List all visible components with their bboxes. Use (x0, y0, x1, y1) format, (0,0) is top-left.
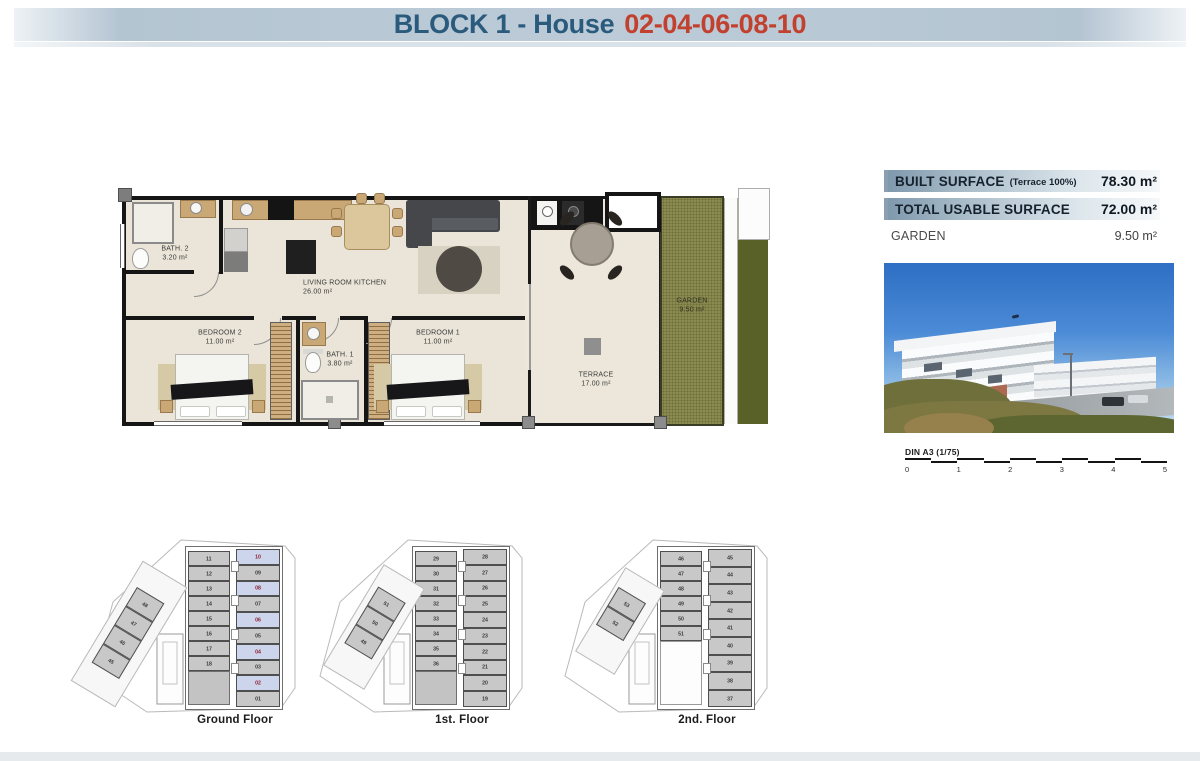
unit-cell: 47 (660, 566, 702, 581)
key-plan-building: 293031323334353628272625242322212019 (412, 546, 510, 710)
wall (122, 316, 254, 320)
unit-number: 14 (206, 601, 212, 607)
scale-tick: 0 (905, 465, 909, 474)
toilet (132, 248, 149, 269)
unit-number: 05 (255, 633, 261, 639)
key-plan-caption: 1st. Floor (382, 714, 542, 726)
unit-number: 50 (371, 619, 379, 627)
unit-number: 34 (433, 631, 439, 637)
unit-number: 10 (255, 554, 261, 560)
stair-core (458, 663, 466, 674)
dining-chair (392, 226, 403, 237)
stair-core (703, 663, 711, 674)
scale-tick: 5 (1163, 465, 1167, 474)
utility-sink-bowl (542, 206, 553, 217)
fridge (268, 200, 294, 220)
wardrobe (270, 322, 292, 420)
page-title: BLOCK 1 - House (394, 9, 615, 39)
unit-cell: 04 (236, 644, 280, 660)
surface-table: BUILT SURFACE (Terrace 100%) 78.30 m² TO… (884, 170, 1160, 252)
unit-cell: 07 (236, 596, 280, 612)
unit-number: 23 (482, 633, 488, 639)
unit-number: 47 (678, 571, 684, 577)
room-label-garden: GARDEN9.50 m² (676, 297, 707, 315)
unit-number: 51 (382, 600, 390, 608)
wall (122, 270, 194, 274)
unit-number: 42 (727, 608, 733, 614)
stair-core (458, 561, 466, 572)
unit-number: 46 (678, 556, 684, 562)
key-plan-building: 111213141516171810090807060504030201 (185, 546, 283, 710)
unit-cell: 38 (708, 672, 752, 690)
bath-sink (190, 202, 202, 214)
key-plan-ground-floor: 111213141516171810090807060504030201 Gro… (85, 538, 315, 734)
shower-drain (326, 396, 333, 403)
unit-number: 52 (611, 619, 619, 627)
unit-number: 39 (727, 660, 733, 666)
unit-cell: 01 (236, 691, 280, 707)
dining-chair (331, 208, 342, 219)
built-surface-note: (Terrace 100%) (1010, 175, 1077, 188)
building-base (188, 671, 230, 705)
stair-core (231, 595, 239, 606)
hall-cabinet-low (224, 252, 248, 272)
unit-number: 26 (482, 586, 488, 592)
unit-cell: 39 (708, 655, 752, 673)
dining-chair (356, 193, 367, 204)
dining-chair (374, 193, 385, 204)
unit-cell: 18 (188, 656, 230, 671)
scale-bar: DIN A3 (1/75) 0 1 2 3 4 5 (905, 447, 1167, 474)
nightstand (376, 400, 389, 413)
built-surface-value: 78.30 m² (1101, 173, 1160, 189)
stair-core (231, 561, 239, 572)
unit-cell: 42 (708, 602, 752, 620)
unit-cell: 14 (188, 596, 230, 611)
built-surface-row: BUILT SURFACE (Terrace 100%) 78.30 m² (884, 170, 1160, 192)
unit-cell: 35 (415, 641, 457, 656)
pillow (396, 406, 426, 417)
shower-tray (132, 202, 174, 244)
unit-cell: 51 (660, 626, 702, 641)
unit-cell: 34 (415, 626, 457, 641)
room-label-bath1: BATH. 13.80 m² (326, 351, 353, 369)
unit-cell: 45 (708, 549, 752, 567)
header-bar: BLOCK 1 - House02-04-06-08-10 (14, 8, 1186, 41)
unit-number: 50 (678, 616, 684, 622)
window (384, 421, 480, 426)
nightstand (252, 400, 265, 413)
unit-number: 51 (678, 631, 684, 637)
dining-chair (392, 208, 403, 219)
unit-number: 38 (727, 678, 733, 684)
unit-number: 36 (433, 661, 439, 667)
page-bottom-strip (0, 752, 1200, 761)
unit-cell: 43 (708, 584, 752, 602)
unit-number: 19 (482, 696, 488, 702)
unit-cell: 24 (463, 612, 507, 628)
unit-number: 28 (482, 554, 488, 560)
unit-number: 43 (727, 590, 733, 596)
unit-number: 04 (255, 649, 261, 655)
unit-number: 31 (433, 586, 439, 592)
wall (219, 196, 223, 274)
unit-cell: 32 (415, 596, 457, 611)
garden-path (724, 198, 738, 424)
unit-cell: 30 (415, 566, 457, 581)
unit-number: 48 (678, 586, 684, 592)
stair-core (231, 629, 239, 640)
scale-tick: 3 (1060, 465, 1064, 474)
unit-number: 06 (255, 617, 261, 623)
building-window (988, 374, 1002, 383)
unit-cell: 10 (236, 549, 280, 565)
garden-row: GARDEN 9.50 m² (884, 226, 1160, 246)
unit-number: 15 (206, 616, 212, 622)
unit-number: 25 (482, 601, 488, 607)
unit-cell: 25 (463, 596, 507, 612)
unit-number: 09 (255, 570, 261, 576)
unit-cell: 40 (708, 637, 752, 655)
room-label-living: LIVING ROOM KITCHEN26.00 m² (303, 279, 386, 297)
built-surface-label: BUILT SURFACE (888, 174, 1005, 189)
unit-cell: 03 (236, 660, 280, 676)
unit-number: 49 (360, 638, 368, 646)
unit-number: 47 (130, 620, 138, 628)
unit-cell: 50 (660, 611, 702, 626)
unit-number: 48 (141, 601, 149, 609)
unit-cell: 09 (236, 565, 280, 581)
stair-core (458, 595, 466, 606)
unit-number: 02 (255, 680, 261, 686)
unit-cell: 23 (463, 628, 507, 644)
wall (296, 316, 300, 424)
unit-number: 12 (206, 571, 212, 577)
toilet (305, 352, 321, 373)
page-title-house-numbers: 02-04-06-08-10 (624, 9, 806, 39)
unit-cell: 29 (415, 551, 457, 566)
car (1128, 395, 1148, 403)
unit-number: 27 (482, 570, 488, 576)
hall-cabinet (224, 228, 248, 252)
unit-cell: 19 (463, 691, 507, 707)
window (120, 224, 125, 268)
stair-core (703, 561, 711, 572)
dining-table (344, 204, 390, 250)
unit-cell: 05 (236, 628, 280, 644)
usable-surface-row: TOTAL USABLE SURFACE 72.00 m² (884, 198, 1160, 220)
dining-chair (331, 226, 342, 237)
pillow (216, 406, 246, 417)
unit-cell: 02 (236, 675, 280, 691)
car (1102, 397, 1124, 406)
nightstand (160, 400, 173, 413)
unit-cell: 33 (415, 611, 457, 626)
room-label-bath2: BATH. 23.20 m² (161, 245, 188, 263)
unit-cell: 48 (660, 581, 702, 596)
unit-cell: 21 (463, 660, 507, 676)
unit-cell: 17 (188, 641, 230, 656)
unit-number: 30 (433, 571, 439, 577)
stair-core (231, 663, 239, 674)
column (522, 416, 535, 429)
building-base (415, 671, 457, 705)
unit-number: 53 (623, 601, 631, 609)
scale-tick: 2 (1008, 465, 1012, 474)
unit-cell: 41 (708, 619, 752, 637)
unit-number: 45 (727, 555, 733, 561)
key-plan-second-floor: 464748495051454443424140393837 2nd. Floo… (557, 538, 787, 734)
column (118, 188, 132, 202)
unit-number: 17 (206, 646, 212, 652)
unit-number: 24 (482, 617, 488, 623)
unit-number: 18 (206, 661, 212, 667)
unit-cell: 37 (708, 690, 752, 708)
apartment-floor-plan: BATH. 23.20 m² LIVING ROOM KITCHEN26.00 … (118, 188, 774, 436)
unit-number: 20 (482, 680, 488, 686)
unit-number: 46 (118, 638, 126, 646)
usable-surface-value: 72.00 m² (1101, 201, 1160, 217)
vegetation (974, 415, 1174, 433)
key-plan-building: 464748495051454443424140393837 (657, 546, 755, 710)
scale-tick: 1 (957, 465, 961, 474)
unit-cell: 11 (188, 551, 230, 566)
unit-cell: 44 (708, 567, 752, 585)
unit-cell: 28 (463, 549, 507, 565)
unit-number: 32 (433, 601, 439, 607)
scale-bar-ticks: 0 1 2 3 4 5 (905, 465, 1167, 474)
unit-number: 33 (433, 616, 439, 622)
kitchen-island (286, 240, 316, 274)
unit-number: 45 (107, 657, 115, 665)
street-lamp-arm (1063, 353, 1073, 355)
terrace-mat (584, 338, 601, 355)
room-label-bedroom2: BEDROOM 211.00 m² (198, 329, 242, 347)
unit-number: 13 (206, 586, 212, 592)
pillow (180, 406, 210, 417)
unit-number: 44 (727, 572, 733, 578)
scale-bar-label: DIN A3 (1/75) (905, 447, 1167, 457)
scale-bar-segments (905, 458, 1167, 465)
unit-number: 49 (678, 601, 684, 607)
unit-cell: 27 (463, 565, 507, 581)
unit-cell: 46 (660, 551, 702, 566)
unit-number: 03 (255, 665, 261, 671)
unit-number: 11 (206, 556, 212, 562)
unit-cell: 06 (236, 612, 280, 628)
unit-number: 22 (482, 649, 488, 655)
building-photo (884, 263, 1174, 433)
unit-cell: 15 (188, 611, 230, 626)
unit-cell: 12 (188, 566, 230, 581)
unit-cell: 20 (463, 675, 507, 691)
window (154, 421, 242, 426)
key-plan-first-floor: 293031323334353628272625242322212019 1st… (312, 538, 542, 734)
unit-number: 16 (206, 631, 212, 637)
pillow (432, 406, 462, 417)
sofa-chaise (406, 200, 432, 248)
unit-number: 40 (727, 643, 733, 649)
unit-number: 21 (482, 665, 488, 671)
column (654, 416, 667, 429)
unit-cell: 08 (236, 581, 280, 597)
kitchen-sink (240, 203, 253, 216)
unit-cell: 16 (188, 626, 230, 641)
bath-sink (307, 327, 320, 340)
scale-tick: 4 (1111, 465, 1115, 474)
stair-core (703, 629, 711, 640)
room-label-bedroom1: BEDROOM 111.00 m² (416, 329, 460, 347)
unit-cell: 26 (463, 581, 507, 597)
stair-core (703, 595, 711, 606)
unit-cell: 36 (415, 656, 457, 671)
terrace-table (570, 222, 614, 266)
key-plan-caption: 2nd. Floor (627, 714, 787, 726)
nightstand (468, 400, 481, 413)
unit-number: 37 (727, 696, 733, 702)
usable-surface-label: TOTAL USABLE SURFACE (888, 202, 1070, 217)
garden-value: 9.50 m² (1115, 229, 1160, 243)
unit-number: 07 (255, 601, 261, 607)
street-lamp (1070, 355, 1072, 401)
room-label-terrace: TERRACE17.00 m² (579, 371, 614, 389)
unit-number: 41 (727, 625, 733, 631)
stair-core (458, 629, 466, 640)
building-base (660, 641, 702, 705)
wall (392, 316, 532, 320)
round-rug (436, 246, 482, 292)
unit-cell: 22 (463, 644, 507, 660)
header-underline (14, 42, 1186, 47)
unit-number: 01 (255, 696, 261, 702)
unit-number: 08 (255, 586, 261, 592)
unit-number: 29 (433, 556, 439, 562)
corner-structure (738, 188, 770, 240)
key-plan-caption: Ground Floor (155, 714, 315, 726)
unit-cell: 49 (660, 596, 702, 611)
unit-number: 35 (433, 646, 439, 652)
terrace-sliding-door-line (529, 284, 531, 370)
garden-label: GARDEN (884, 229, 946, 243)
unit-cell: 13 (188, 581, 230, 596)
